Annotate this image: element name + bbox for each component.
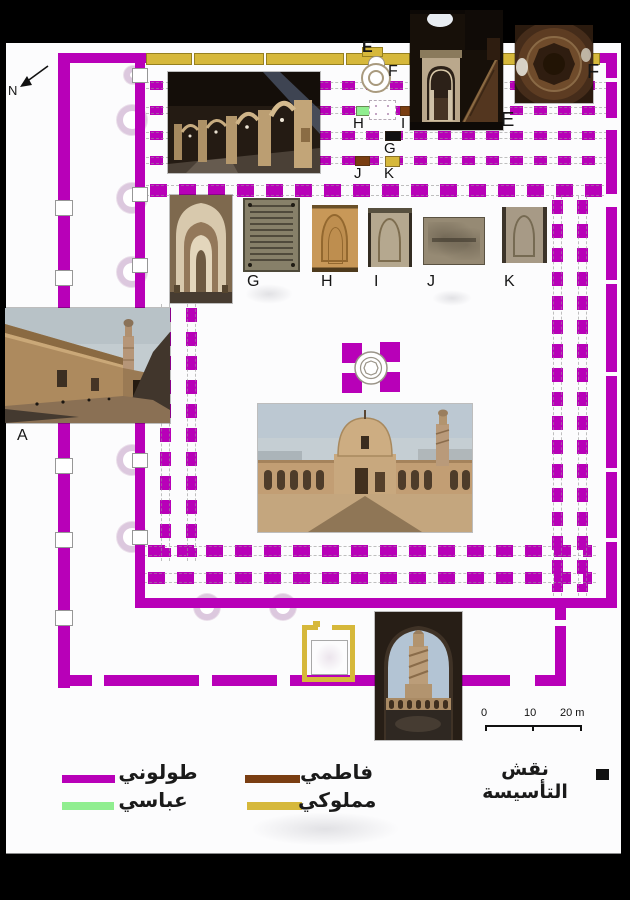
outer-wall-door: [55, 270, 73, 286]
sabil-door-gap: [318, 624, 332, 631]
legend-swatch-abbasid: [62, 802, 114, 810]
panel-photo-k: [502, 207, 547, 263]
panel-label-k: K: [504, 274, 515, 290]
wall-entrance-gap: [604, 372, 619, 376]
arcade-pier-row-bold: [148, 572, 592, 584]
mamluk-qibla-bar: [194, 53, 264, 65]
scan-smudge: [432, 290, 472, 306]
legend-swatch-fatimid: [245, 775, 300, 783]
mamluk-qibla-bar: [266, 53, 344, 65]
arcade-pier-column: [552, 200, 563, 592]
wall-entrance-gap: [604, 538, 619, 542]
inner-wall-door: [132, 258, 148, 273]
legend-swatch-foundation: [596, 769, 609, 780]
marker-label-g: G: [384, 141, 396, 156]
photo-exterior-wall: [5, 308, 170, 423]
wall-entrance-gap: [277, 675, 290, 687]
legend-swatch-tulunid: [62, 775, 115, 783]
wall-entrance-gap: [604, 118, 619, 130]
scale-ten: 10: [524, 707, 536, 719]
inner-wall-door: [132, 187, 148, 202]
scale-twenty: 20 m: [560, 707, 584, 719]
panel-label-h: H: [321, 274, 333, 290]
inner-wall-door: [132, 453, 148, 468]
wall-tulunid: [135, 598, 558, 608]
scale-tick-20: [580, 725, 582, 731]
mamluk-qibla-bar: [146, 53, 192, 65]
panel-label-i: I: [374, 274, 378, 290]
legend-label-foundation: نقش التأسيسة: [458, 758, 592, 804]
panel-photo-j: [423, 217, 485, 265]
photo-courtyard: [258, 404, 472, 532]
panel-label-g: G: [247, 274, 259, 290]
inner-wall-door: [132, 530, 148, 545]
photo-arcade-interior: [168, 72, 320, 173]
marker-label-j: J: [354, 166, 362, 181]
label-f-axis: F: [388, 64, 398, 80]
north-label: N: [8, 84, 17, 97]
photo-dome-interior: [515, 25, 593, 103]
legend-swatch-mamluk: [247, 802, 302, 810]
legend-label-mamluk: مملوكي: [298, 788, 370, 812]
wall-entrance-gap: [604, 468, 619, 472]
panel-label-j: J: [427, 274, 435, 290]
legend-label-abbasid: عباسي: [118, 788, 188, 812]
wall-entrance-gap: [604, 194, 619, 207]
outer-wall-door: [55, 458, 73, 474]
label-a: A: [17, 428, 28, 444]
inner-wall-door: [132, 68, 148, 83]
photo-minaret-arch: [375, 612, 462, 740]
wall-entrance-gap: [510, 675, 535, 687]
sabil-door-tick: [313, 621, 320, 627]
panel-photo-h: [312, 205, 358, 272]
arcade-pier-column: [186, 308, 197, 557]
wall-entrance-gap: [604, 78, 619, 82]
panel-photo-i: [368, 208, 412, 267]
dome-plan-inner-ring: [368, 70, 384, 86]
marker-dotted-square: [369, 100, 396, 120]
wall-tulunid: [58, 53, 146, 63]
label-f-photo: F: [587, 62, 599, 82]
wall-tulunid: [555, 598, 566, 686]
legend-label-tulunid: طولوني: [118, 760, 198, 784]
outer-wall-door: [55, 532, 73, 548]
panel-photo-g: [243, 198, 300, 272]
scan-smudge: [250, 812, 400, 846]
wall-entrance-gap: [604, 280, 619, 284]
outer-wall-door: [55, 610, 73, 626]
wall-tulunid: [565, 598, 617, 608]
scale-tick-10: [532, 725, 534, 731]
sabil-inner-basin: [311, 640, 348, 675]
photo-mihrab-minbar: [410, 10, 503, 130]
wall-tulunid: [606, 53, 617, 598]
scanned-figure: N E F H I G J K: [0, 0, 630, 900]
scale-tick-0: [485, 725, 487, 731]
label-e-axis: E: [362, 40, 373, 56]
marker-label-i: I: [401, 116, 405, 131]
arcade-pier-column: [577, 200, 588, 592]
photo-arcade-arches: [170, 195, 232, 303]
fountain-plan: [340, 340, 402, 396]
wall-entrance-gap: [199, 675, 212, 687]
legend-label-fatimid: فاطمي: [300, 760, 366, 784]
scale-zero: 0: [481, 707, 487, 719]
outer-wall-door: [55, 200, 73, 216]
label-e-photo: E: [501, 110, 514, 130]
arcade-pier-row-bold: [148, 545, 592, 557]
wall-entrance-gap: [92, 675, 104, 687]
wall-entrance-gap: [553, 620, 568, 626]
marker-label-k: K: [384, 166, 394, 181]
marker-label-h: H: [353, 116, 364, 131]
